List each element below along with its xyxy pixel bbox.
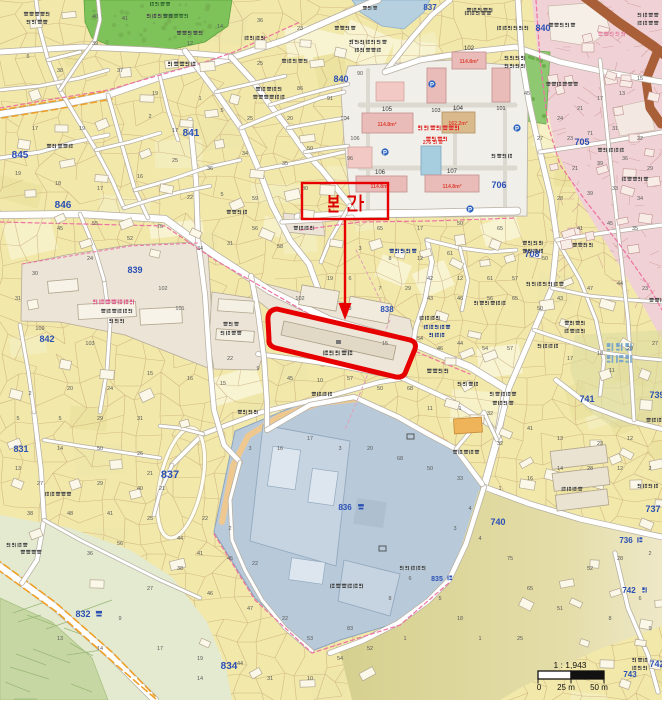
svg-text:17: 17 — [567, 356, 573, 362]
svg-text:50: 50 — [377, 386, 383, 392]
svg-text:24: 24 — [557, 116, 563, 122]
svg-text:7: 7 — [378, 286, 381, 292]
svg-text:40: 40 — [137, 486, 143, 492]
svg-text:50 m: 50 m — [590, 683, 608, 692]
svg-text:29: 29 — [647, 166, 653, 172]
svg-text:24: 24 — [87, 256, 93, 262]
svg-text:65: 65 — [497, 226, 503, 232]
svg-text:36: 36 — [207, 166, 213, 172]
svg-text:34: 34 — [637, 196, 643, 202]
svg-text:19: 19 — [197, 656, 203, 662]
svg-text:39: 39 — [587, 191, 593, 197]
svg-text:19: 19 — [79, 126, 85, 132]
svg-text:741: 741 — [579, 394, 594, 404]
svg-text:19: 19 — [327, 276, 333, 282]
svg-text:21: 21 — [147, 471, 153, 477]
svg-text:17: 17 — [417, 226, 423, 232]
svg-text:18: 18 — [55, 181, 61, 187]
svg-text:29: 29 — [97, 416, 103, 422]
svg-text:1: 1 — [198, 96, 201, 102]
svg-text:39: 39 — [92, 41, 98, 47]
svg-text:57: 57 — [347, 376, 353, 382]
svg-text:48: 48 — [67, 511, 73, 517]
svg-text:27: 27 — [37, 481, 43, 487]
svg-text:17: 17 — [307, 436, 313, 442]
svg-text:27: 27 — [147, 586, 153, 592]
svg-text:19: 19 — [15, 171, 21, 177]
svg-text:16: 16 — [277, 446, 283, 452]
svg-text:3: 3 — [453, 526, 456, 532]
svg-text:21: 21 — [577, 106, 583, 112]
svg-text:13: 13 — [15, 466, 21, 472]
svg-text:102: 102 — [158, 286, 167, 292]
svg-text:35: 35 — [632, 226, 638, 232]
svg-text:107: 107 — [447, 169, 458, 175]
svg-text:P: P — [515, 126, 519, 132]
svg-text:20: 20 — [627, 346, 633, 352]
svg-text:842: 842 — [39, 334, 54, 344]
svg-text:2: 2 — [148, 114, 151, 120]
svg-text:102: 102 — [295, 296, 304, 302]
svg-text:12: 12 — [457, 276, 463, 282]
svg-text:841: 841 — [183, 128, 200, 139]
svg-text:22: 22 — [187, 195, 193, 201]
svg-text:17: 17 — [597, 96, 603, 102]
svg-text:32: 32 — [497, 441, 503, 447]
svg-text:840: 840 — [333, 74, 348, 84]
svg-text:27: 27 — [537, 136, 543, 142]
svg-text:106: 106 — [350, 136, 359, 142]
svg-text:53: 53 — [307, 636, 313, 642]
svg-text:22: 22 — [227, 356, 233, 362]
svg-text:36: 36 — [622, 156, 628, 162]
svg-text:40: 40 — [92, 14, 98, 20]
svg-text:9: 9 — [118, 616, 121, 622]
svg-text:12: 12 — [627, 436, 633, 442]
svg-text:25: 25 — [147, 516, 153, 522]
svg-text:2: 2 — [648, 466, 651, 472]
svg-text:15: 15 — [220, 381, 226, 387]
svg-text:34: 34 — [197, 246, 203, 252]
svg-text:838: 838 — [380, 305, 394, 314]
svg-text:46: 46 — [207, 591, 213, 597]
svg-text:35: 35 — [282, 161, 288, 167]
svg-text:14: 14 — [97, 646, 103, 652]
svg-text:26: 26 — [137, 451, 143, 457]
svg-text:6: 6 — [638, 596, 641, 602]
svg-text:12: 12 — [617, 466, 623, 472]
svg-text:38: 38 — [57, 68, 63, 74]
svg-text:114.8m²: 114.8m² — [442, 184, 461, 190]
svg-text:16: 16 — [527, 476, 533, 482]
svg-text:17: 17 — [157, 646, 163, 652]
svg-text:3: 3 — [358, 246, 361, 252]
svg-text:59: 59 — [252, 196, 258, 202]
svg-text:13: 13 — [619, 91, 625, 97]
svg-text:276: 276 — [423, 140, 432, 146]
svg-text:2: 2 — [28, 391, 31, 397]
svg-text:65: 65 — [377, 226, 383, 232]
svg-text:20: 20 — [367, 446, 373, 452]
svg-text:22: 22 — [637, 136, 643, 142]
svg-text:57: 57 — [507, 346, 513, 352]
svg-text:17: 17 — [172, 128, 178, 134]
svg-text:36: 36 — [87, 551, 93, 557]
svg-text:103: 103 — [85, 341, 94, 347]
svg-text:12: 12 — [417, 256, 423, 262]
svg-text:3: 3 — [338, 446, 341, 452]
svg-text:840: 840 — [535, 23, 550, 33]
svg-text:50: 50 — [542, 256, 548, 262]
svg-text:23: 23 — [597, 441, 603, 447]
svg-text:91: 91 — [327, 96, 333, 102]
svg-text:45: 45 — [57, 226, 63, 232]
svg-text:102: 102 — [464, 46, 475, 52]
svg-text:44: 44 — [237, 661, 243, 667]
svg-text:52: 52 — [587, 566, 593, 572]
svg-text:1 : 1,943: 1 : 1,943 — [553, 660, 586, 670]
svg-text:743: 743 — [623, 670, 637, 679]
svg-text:52: 52 — [127, 236, 133, 242]
svg-text:96: 96 — [347, 156, 353, 162]
svg-text:8: 8 — [388, 596, 391, 602]
svg-text:25: 25 — [247, 116, 253, 122]
svg-text:14: 14 — [197, 676, 203, 682]
svg-text:16: 16 — [187, 376, 193, 382]
svg-text:5: 5 — [16, 416, 19, 422]
svg-text:54: 54 — [337, 656, 343, 662]
svg-text:739: 739 — [649, 390, 662, 400]
svg-text:23: 23 — [642, 286, 648, 292]
svg-text:25: 25 — [517, 636, 523, 642]
svg-text:835: 835 — [431, 576, 443, 583]
svg-text:38: 38 — [177, 566, 183, 572]
svg-text:71: 71 — [587, 131, 593, 137]
svg-text:56: 56 — [252, 226, 258, 232]
svg-text:1: 1 — [478, 636, 481, 642]
svg-text:5: 5 — [220, 192, 223, 198]
svg-text:1: 1 — [498, 486, 501, 492]
svg-text:19: 19 — [152, 91, 158, 97]
svg-text:31: 31 — [227, 241, 233, 247]
svg-text:P: P — [468, 207, 472, 213]
svg-text:42: 42 — [427, 276, 433, 282]
svg-text:68: 68 — [407, 386, 413, 392]
svg-text:14: 14 — [57, 446, 63, 452]
svg-text:28: 28 — [557, 196, 563, 202]
svg-text:832: 832 — [75, 609, 90, 619]
svg-text:34: 34 — [242, 151, 248, 157]
svg-text:15: 15 — [382, 341, 388, 347]
svg-text:8: 8 — [388, 256, 391, 262]
svg-text:21: 21 — [159, 486, 165, 492]
svg-text:41: 41 — [197, 551, 203, 557]
svg-text:13: 13 — [57, 636, 63, 642]
svg-text:11: 11 — [609, 368, 615, 374]
svg-text:12: 12 — [187, 41, 193, 47]
svg-text:27: 27 — [652, 341, 658, 347]
svg-text:105: 105 — [382, 107, 393, 113]
svg-text:41: 41 — [577, 226, 583, 232]
svg-text:56: 56 — [117, 541, 123, 547]
svg-text:0: 0 — [537, 683, 542, 692]
svg-text:736: 736 — [619, 536, 633, 545]
svg-text:41: 41 — [107, 511, 113, 517]
svg-text:29: 29 — [405, 286, 411, 292]
svg-text:1: 1 — [403, 636, 406, 642]
svg-text:4: 4 — [468, 506, 471, 512]
svg-text:706: 706 — [491, 180, 506, 190]
svg-text:33: 33 — [612, 186, 618, 192]
svg-text:831: 831 — [13, 444, 28, 454]
svg-text:846: 846 — [55, 200, 72, 211]
svg-text:6: 6 — [26, 54, 29, 60]
svg-text:50: 50 — [97, 446, 103, 452]
svg-text:45: 45 — [227, 556, 233, 562]
svg-text:75: 75 — [157, 224, 163, 230]
svg-text:83: 83 — [347, 626, 353, 632]
svg-text:20: 20 — [287, 116, 293, 122]
svg-text:2: 2 — [648, 551, 651, 557]
svg-text:31: 31 — [137, 416, 143, 422]
svg-text:15: 15 — [637, 76, 643, 82]
svg-text:17: 17 — [97, 186, 103, 192]
svg-text:50: 50 — [427, 466, 433, 472]
svg-text:28: 28 — [617, 556, 623, 562]
svg-text:50: 50 — [307, 146, 313, 152]
svg-text:37: 37 — [117, 68, 123, 74]
svg-text:20: 20 — [67, 386, 73, 392]
svg-text:114.8m²: 114.8m² — [377, 122, 396, 128]
svg-text:101: 101 — [175, 306, 184, 312]
svg-text:61: 61 — [447, 251, 453, 257]
svg-text:23: 23 — [567, 136, 573, 142]
svg-text:65: 65 — [527, 586, 533, 592]
svg-text:837: 837 — [423, 3, 437, 12]
svg-text:2: 2 — [228, 526, 231, 532]
svg-text:90: 90 — [357, 71, 363, 77]
svg-text:P: P — [383, 150, 387, 156]
svg-text:55: 55 — [92, 221, 98, 227]
svg-text:103: 103 — [431, 108, 440, 114]
svg-text:16: 16 — [137, 174, 143, 180]
svg-text:65: 65 — [512, 296, 518, 302]
svg-text:9: 9 — [648, 626, 651, 632]
svg-text:45: 45 — [287, 376, 293, 382]
svg-text:114.8m²: 114.8m² — [459, 59, 478, 65]
svg-text:14: 14 — [557, 466, 563, 472]
svg-text:104: 104 — [340, 116, 349, 122]
svg-text:740: 740 — [490, 517, 505, 527]
svg-text:29: 29 — [97, 481, 103, 487]
svg-text:24: 24 — [107, 386, 113, 392]
svg-text:6: 6 — [348, 276, 351, 282]
svg-text:839: 839 — [127, 265, 142, 275]
svg-text:845: 845 — [12, 150, 29, 161]
svg-text:22: 22 — [282, 616, 288, 622]
svg-text:50: 50 — [537, 306, 543, 312]
svg-text:44: 44 — [177, 536, 183, 542]
svg-text:43: 43 — [427, 296, 433, 302]
svg-text:31: 31 — [612, 126, 618, 132]
svg-text:32: 32 — [487, 411, 493, 417]
svg-text:23: 23 — [297, 26, 303, 32]
svg-text:43: 43 — [557, 296, 563, 302]
svg-text:52: 52 — [367, 646, 373, 652]
svg-text:38: 38 — [27, 511, 33, 517]
svg-text:39: 39 — [597, 161, 603, 167]
svg-text:30: 30 — [32, 271, 38, 277]
svg-text:54: 54 — [417, 336, 423, 342]
svg-text:104: 104 — [453, 106, 464, 112]
svg-text:1: 1 — [458, 406, 461, 412]
svg-text:31: 31 — [15, 296, 21, 302]
svg-text:45: 45 — [607, 221, 613, 227]
svg-text:75: 75 — [507, 556, 513, 562]
svg-text:13: 13 — [557, 436, 563, 442]
svg-text:9: 9 — [256, 366, 259, 372]
svg-text:41: 41 — [527, 426, 533, 432]
svg-text:31: 31 — [267, 676, 273, 682]
svg-text:15: 15 — [147, 371, 153, 377]
svg-text:61: 61 — [487, 276, 493, 282]
svg-text:10: 10 — [317, 378, 323, 384]
svg-text:56: 56 — [487, 296, 493, 302]
svg-text:18: 18 — [457, 616, 463, 622]
svg-text:68: 68 — [397, 456, 403, 462]
svg-text:14: 14 — [217, 24, 223, 30]
svg-text:51: 51 — [557, 606, 563, 612]
svg-text:109: 109 — [35, 326, 44, 332]
svg-text:737: 737 — [645, 504, 660, 514]
svg-text:17: 17 — [32, 126, 38, 132]
svg-text:58: 58 — [277, 244, 283, 250]
svg-text:25: 25 — [257, 61, 263, 67]
svg-text:36: 36 — [257, 18, 263, 24]
svg-text:834: 834 — [221, 661, 238, 672]
svg-text:742: 742 — [649, 659, 662, 669]
svg-text:47: 47 — [587, 286, 593, 292]
svg-text:45: 45 — [524, 91, 530, 97]
svg-text:11: 11 — [427, 406, 433, 412]
svg-text:101: 101 — [496, 106, 505, 112]
svg-text:46: 46 — [437, 346, 443, 352]
svg-text:41: 41 — [122, 16, 128, 22]
svg-text:3: 3 — [248, 446, 251, 452]
svg-text:10: 10 — [307, 676, 313, 682]
svg-text:44: 44 — [617, 281, 623, 287]
svg-text:21: 21 — [572, 166, 578, 172]
svg-text:705: 705 — [574, 137, 589, 147]
svg-text:P: P — [430, 82, 434, 88]
svg-text:47: 47 — [247, 606, 253, 612]
svg-text:6: 6 — [408, 576, 411, 582]
svg-text:5: 5 — [220, 108, 223, 114]
svg-text:46: 46 — [457, 296, 463, 302]
svg-text:44: 44 — [457, 341, 463, 347]
svg-text:742: 742 — [622, 586, 636, 595]
svg-text:57: 57 — [512, 276, 518, 282]
svg-text:50: 50 — [457, 221, 463, 227]
svg-text:22: 22 — [202, 516, 208, 522]
svg-text:86: 86 — [297, 86, 303, 92]
svg-text:837: 837 — [161, 469, 179, 481]
svg-text:22: 22 — [252, 561, 258, 567]
svg-text:5: 5 — [438, 596, 441, 602]
svg-text:8: 8 — [608, 616, 611, 622]
svg-text:836: 836 — [338, 503, 352, 512]
svg-text:25: 25 — [172, 158, 178, 164]
svg-text:106: 106 — [375, 170, 386, 176]
svg-text:28: 28 — [587, 466, 593, 472]
svg-text:25 m: 25 m — [557, 683, 575, 692]
svg-text:18: 18 — [597, 351, 603, 357]
svg-text:33: 33 — [457, 476, 463, 482]
svg-text:5: 5 — [58, 416, 61, 422]
svg-text:54: 54 — [482, 346, 488, 352]
svg-text:4: 4 — [478, 536, 481, 542]
